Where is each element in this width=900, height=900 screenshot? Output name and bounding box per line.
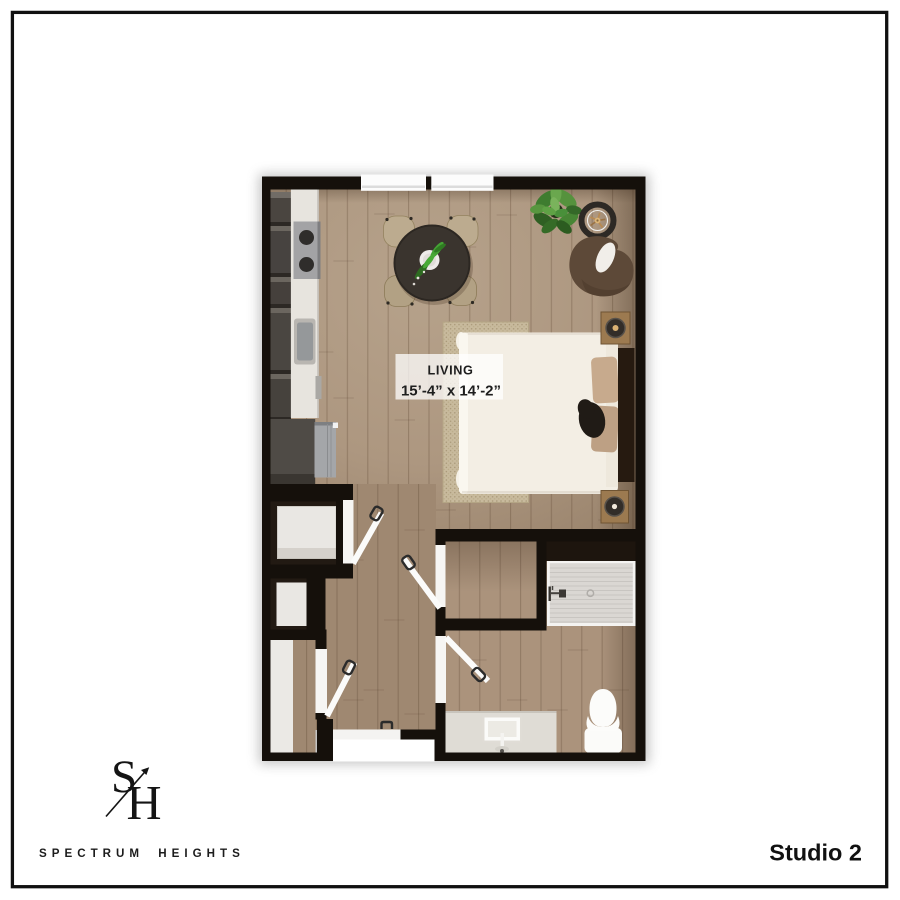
svg-text:SPECTRUM HEIGHTS: SPECTRUM HEIGHTS xyxy=(39,847,245,860)
svg-text:H: H xyxy=(127,777,162,830)
svg-text:LIVING: LIVING xyxy=(428,363,474,377)
svg-text:15’-4” x 14’-2”: 15’-4” x 14’-2” xyxy=(401,382,501,399)
svg-text:Studio 2: Studio 2 xyxy=(769,840,862,866)
